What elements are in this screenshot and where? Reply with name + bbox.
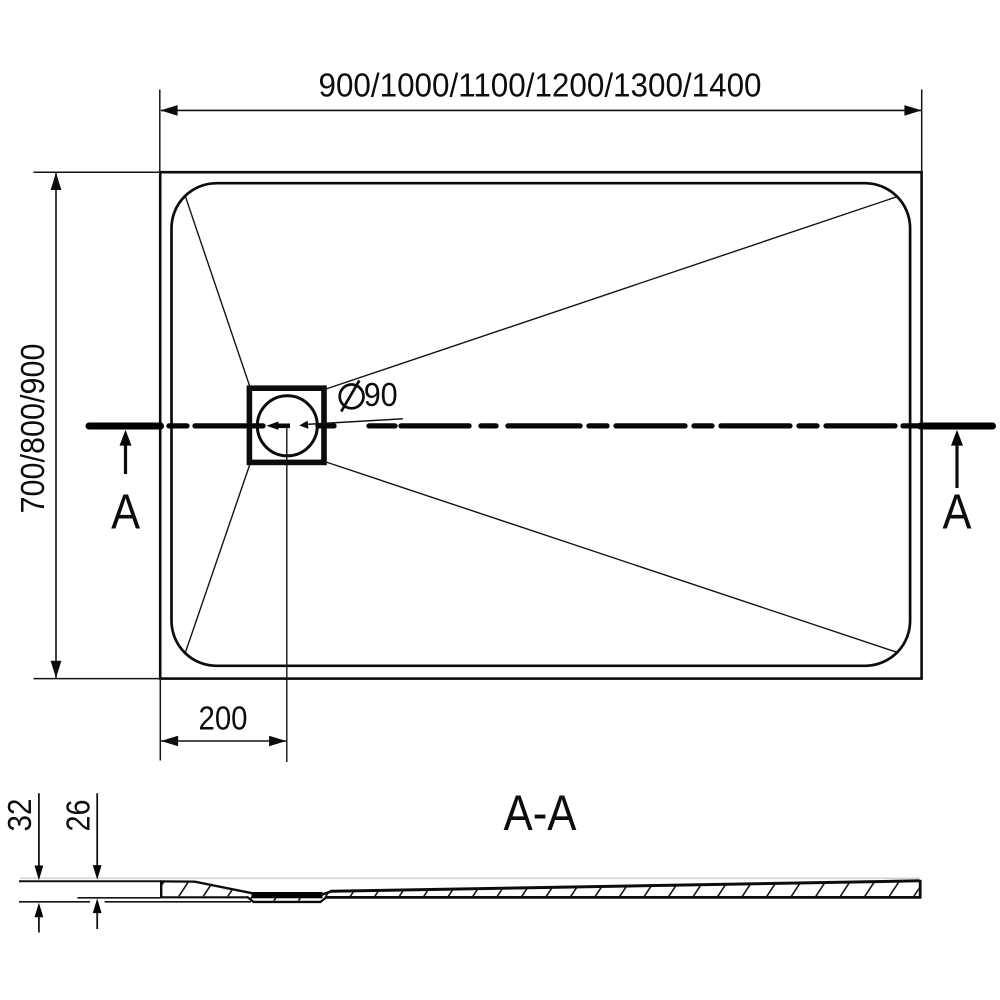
svg-text:700/800/900: 700/800/900 (14, 344, 51, 514)
svg-text:32: 32 (1, 799, 38, 832)
svg-text:200: 200 (199, 700, 248, 737)
svg-text:A: A (943, 485, 972, 540)
svg-text:A: A (111, 485, 140, 540)
svg-text:A-A: A-A (504, 784, 577, 841)
svg-text:900/1000/1100/1200/1300/1400: 900/1000/1100/1200/1300/1400 (319, 67, 762, 104)
svg-text:90: 90 (364, 376, 398, 413)
svg-text:26: 26 (60, 800, 97, 832)
